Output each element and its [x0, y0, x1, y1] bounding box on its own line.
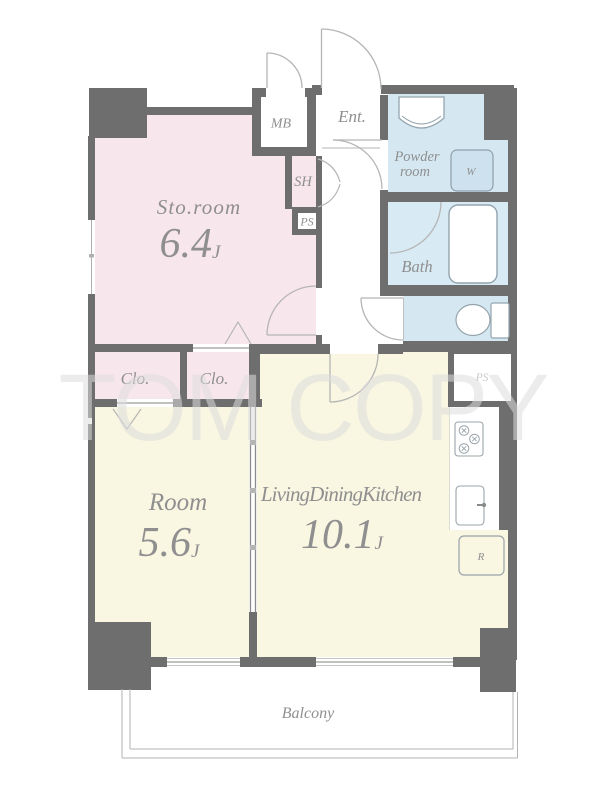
svg-text:room: room [400, 164, 430, 180]
svg-text:Ent.: Ent. [337, 107, 366, 126]
svg-text:Powder: Powder [393, 149, 439, 165]
svg-text:LivingDiningKitchen: LivingDiningKitchen [260, 482, 422, 506]
svg-text:MB: MB [270, 117, 292, 132]
svg-text:Room: Room [148, 489, 207, 516]
svg-text:W: W [466, 166, 476, 178]
svg-text:Sto.room: Sto.room [157, 195, 241, 219]
svg-text:PS: PS [299, 215, 313, 229]
svg-text:Balcony: Balcony [282, 705, 335, 722]
svg-text:TOM COPY: TOM COPY [59, 355, 549, 461]
svg-text:Bath: Bath [401, 257, 432, 276]
svg-text:R: R [477, 551, 485, 563]
svg-text:10.1J: 10.1J [301, 512, 385, 558]
svg-text:SH: SH [294, 174, 313, 190]
